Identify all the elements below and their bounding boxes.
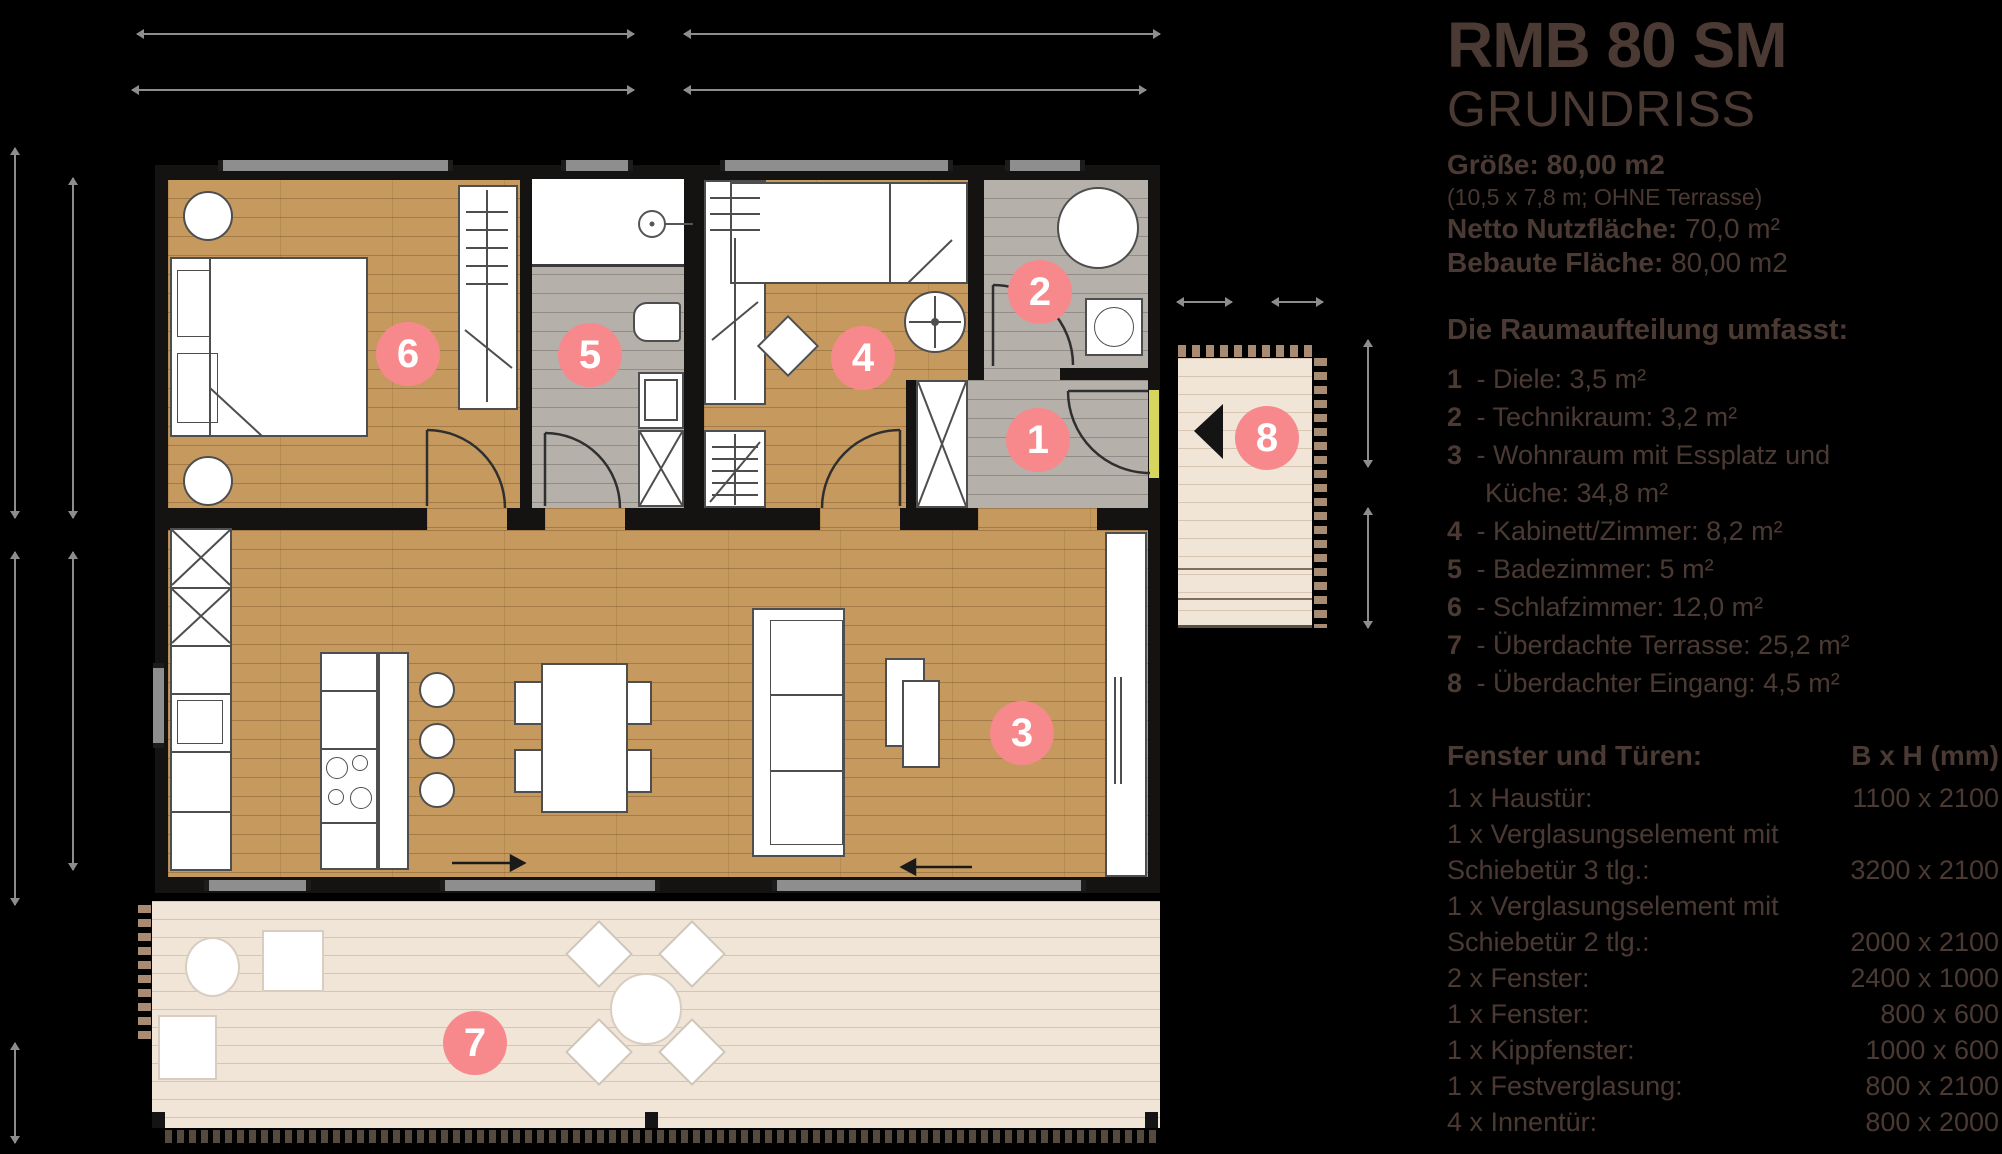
porch-top-edge-slats [1178,345,1312,357]
room-list-item: 3 - Wohnraum mit Essplatz und [1447,436,1999,474]
window-sill-bedroom-top [218,160,453,171]
cooktop-burner-3 [328,789,344,805]
window-row: 1 x Festverglasung:800 x 2100 [1447,1068,1999,1104]
room-marker-7: 7 [443,1011,507,1075]
dimension-line-left-inner-upper [72,178,74,518]
wall-mid-d [900,508,978,530]
porch-step-line-2 [1178,598,1312,600]
window-row: Schiebetür 2 tlg.:2000 x 2100 [1447,924,1999,960]
bedroom-door-threshold [427,508,507,530]
technical-door-threshold [984,368,1060,380]
bedroom-wardrobe [458,185,518,410]
window-row: Schiebetür 3 tlg.:3200 x 2100 [1447,852,1999,888]
floorplan-sheet: 1 2 3 4 5 6 7 8 RMB 80 SM GRUNDRISS Größ… [0,0,2002,1154]
room-list-item: 7 - Überdachte Terrasse: 25,2 m² [1447,626,1999,664]
wall-mid-e [1097,508,1160,530]
window-sill-cabinet-top [720,160,953,171]
terrace-bench [158,1015,217,1080]
net-area-line: Netto Nutzfläche: 70,0 m² [1447,212,1788,246]
terrace-post-left [152,1112,165,1128]
bathroom-cabinet [638,430,684,507]
terrace-post-right [1145,1112,1158,1128]
room-marker-4: 4 [831,326,895,390]
dimension-line-top-outer-left [137,33,634,35]
terrace-lounge-chair [262,930,324,992]
sideboard-handle [1114,677,1122,784]
sideboard [1105,532,1147,877]
hall-living-passage [978,508,1097,530]
wall-mid-a [155,508,427,530]
sill-sliding-door-3part [772,880,1086,891]
porch-deck [1178,358,1312,628]
dimension-line-top-outer-right [684,33,1160,35]
bar-stool-1 [419,672,455,708]
window-row: 1 x Haustür:1100 x 2100 [1447,780,1999,816]
toilet [633,302,681,342]
washing-machine-drum [1094,307,1134,347]
cooktop-burner-4 [350,787,372,809]
cabinet-ladder [704,430,766,508]
single-bed [730,182,968,284]
bedroom-side-table-bottom [183,456,233,506]
bar-stool-3 [419,772,455,808]
room-list-item: 1 - Diele: 3,5 m² [1447,360,1999,398]
island-divider-2 [320,748,378,750]
window-row: 1 x Fenster:800 x 600 [1447,996,1999,1032]
windows-heading: Fenster und Türen: [1447,740,1702,772]
dimension-line-porch-lower [1367,508,1369,628]
window-row: 1 x Verglasungselement mit [1447,888,1999,924]
water-heater [1057,187,1139,269]
dining-table [541,663,628,813]
window-sill-technical-top [1005,160,1085,171]
cabinet-door-threshold [820,508,900,530]
sofa-cushion-line-2 [770,770,843,772]
island-divider-1 [320,690,378,692]
built-area-line: Bebaute Fläche: 80,00 m2 [1447,246,1788,280]
size-note: (10,5 x 7,8 m; OHNE Terrasse) [1447,182,1788,212]
bath-door-threshold [545,508,625,530]
window-row: 2 x Fenster:2400 x 1000 [1447,960,1999,996]
dimension-line-left-terrace [14,1043,16,1143]
hallway-closet [916,380,968,508]
rooms-heading: Die Raumaufteilung umfasst: [1447,314,1848,347]
living-room-floor [168,530,1148,877]
kitchen-tall-cabinet-2 [170,645,232,647]
bed-pillow-bottom [177,353,218,423]
meta-block: Größe: 80,00 m2 (10,5 x 7,8 m; OHNE Terr… [1447,148,1788,280]
room-marker-8: 8 [1235,406,1299,470]
terrace-round-table [610,973,682,1045]
wall-bath-cabinet [684,165,704,530]
porch-right-edge-slats [1314,358,1327,628]
page-subtitle: GRUNDRISS [1447,80,1756,138]
dimension-line-left-inner-lower [72,552,74,870]
terrace-plant [185,937,240,997]
room-list-item: 4 - Kabinett/Zimmer: 8,2 m² [1447,512,1999,550]
rooms-list: 1 - Diele: 3,5 m² 2 - Technikraum: 3,2 m… [1447,360,1999,702]
wall-technical-hall [1060,368,1160,380]
wall-hall-niche [906,380,916,508]
size-line: Größe: 80,00 m2 [1447,148,1788,182]
window-sill-kitchen-left [153,663,164,748]
room-list-item: 2 - Technikraum: 3,2 m² [1447,398,1999,436]
wall-cabinet-technical [968,165,984,380]
room-list-item: 6 - Schlafzimmer: 12,0 m² [1447,588,1999,626]
sill-bottom-window [204,880,311,891]
windows-unit-label: B x H (mm) [1851,740,1999,772]
dimension-line-top-inner-left [132,89,634,91]
cooktop-burner-2 [352,755,368,771]
terrace-bottom-fringe [165,1130,1160,1143]
windows-list: 1 x Haustür:1100 x 2100 1 x Verglasungse… [1447,780,1999,1140]
window-row: 1 x Kippfenster:1000 x 600 [1447,1032,1999,1068]
bathroom-sink [638,372,684,429]
kitchen-tall-cabinet-1 [170,587,232,589]
cooktop-burner-1 [326,757,348,779]
wall-mid-c [625,508,820,530]
sofa-cushion-line-1 [770,694,843,696]
terrace-left-edge-slats [138,905,151,1040]
kitchen-counter-line-1 [170,693,232,695]
room-list-item: 5 - Badezimmer: 5 m² [1447,550,1999,588]
porch-step-line-1 [1178,568,1312,570]
dimension-line-top-inner-right [684,89,1146,91]
dimension-line-left-outer-upper [14,148,16,518]
wall-bedroom-bath [520,165,532,530]
sill-sliding-door-2part [440,880,660,891]
terrace-post-middle [645,1112,658,1128]
dimension-line-porch-left [1177,301,1232,303]
armchair [902,680,940,768]
room-marker-3: 3 [990,701,1054,765]
dimension-line-porch-right [1272,301,1323,303]
kitchen-counter-line-3 [170,811,232,813]
page-title: RMB 80 SM [1447,8,1787,82]
kitchen-sink [177,700,223,744]
bar-stool-2 [419,723,455,759]
room-marker-2: 2 [1008,260,1072,324]
window-row: 1 x Verglasungselement mit [1447,816,1999,852]
room-marker-1: 1 [1006,408,1070,472]
bathtub-zone [532,179,684,267]
bedroom-side-table-top [183,191,233,241]
island-divider-3 [320,822,378,824]
dimension-line-porch-upper [1367,340,1369,467]
entry-door-leaf [1149,390,1159,478]
room-list-item-continuation: Küche: 34,8 m² [1447,474,1999,512]
island-counter-overhang [378,652,409,870]
bed-pillow-top [177,270,210,337]
dimension-line-left-outer-lower [14,552,16,905]
window-row: 4 x Innentür:800 x 2000 [1447,1104,1999,1140]
room-marker-6: 6 [376,322,440,386]
room-marker-5: 5 [558,323,622,387]
windows-heading-row: Fenster und Türen: B x H (mm) [1447,740,1999,772]
sofa-seat [770,620,843,845]
room-list-item: 8 - Überdachter Eingang: 4,5 m² [1447,664,1999,702]
window-sill-bath-top [561,160,633,171]
kitchen-counter-line-2 [170,751,232,753]
